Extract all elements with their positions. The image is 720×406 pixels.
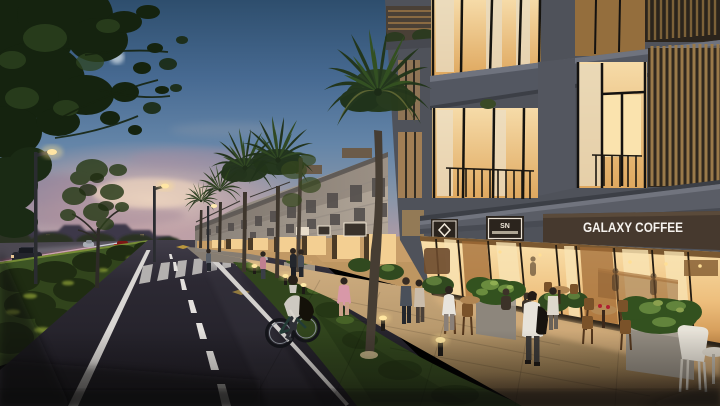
svg-text:SN: SN [500, 223, 510, 230]
svg-text:GALAXY COFFEE: GALAXY COFFEE [583, 219, 683, 235]
